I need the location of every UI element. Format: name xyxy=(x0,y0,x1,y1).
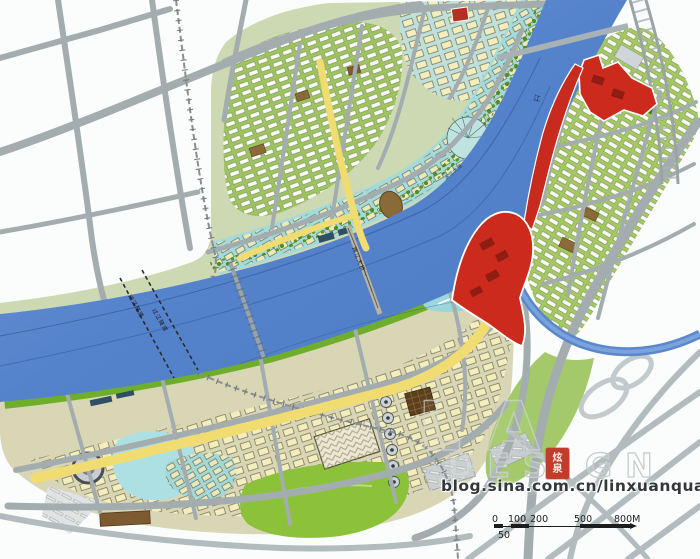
seal-char-top: 炫 xyxy=(553,453,563,464)
seal-char-bottom: 泉 xyxy=(553,464,563,475)
master-plan-map: 江 过江隧道 过江隧道 跨江大桥 滨江大道 LA DESIGN 炫 泉 blog… xyxy=(0,0,700,559)
red-seal-stamp: 炫 泉 xyxy=(546,448,569,479)
scale-bar: 0 100 200 500 800M 50 xyxy=(486,514,652,542)
scale-bar-arrowhead xyxy=(630,523,637,529)
small-red-block xyxy=(451,7,469,22)
blog-url-watermark: blog.sina.com.cn/linxuanquan xyxy=(441,477,700,495)
scale-label-50: 50 xyxy=(498,530,510,541)
scale-label-200: 200 xyxy=(530,514,548,525)
